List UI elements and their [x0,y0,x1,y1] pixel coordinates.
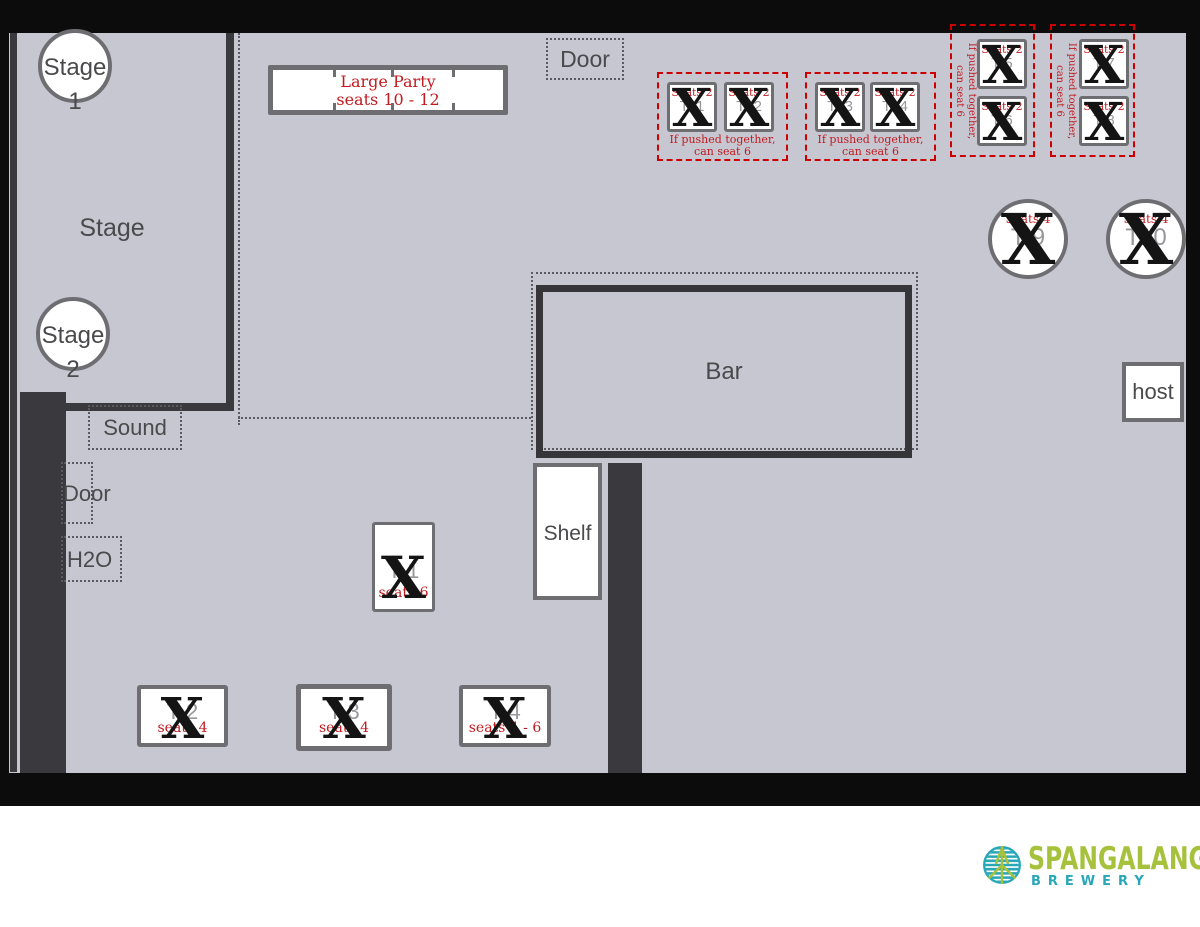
spangalang-logo-icon [980,843,1024,887]
t10-closed-x: X [1110,205,1182,275]
table-joint-tick [452,67,455,77]
t2-closed-x: X [141,691,224,747]
shelf: Shelf [533,463,602,600]
table-joint-tick [391,67,394,77]
stage2-label: Stage 2 [23,319,123,387]
table-t7[interactable]: Seats 2 T 7 X [1079,39,1129,89]
host-stand: host [1122,362,1184,422]
t3-closed-x: X [301,691,387,747]
stage-area-label: Stage [52,214,172,243]
bar: Bar [536,285,912,458]
table-t5[interactable]: Seats 2 T 5 X [977,39,1027,89]
t4-closed-x: X [463,691,547,747]
table-group-t5-t6: Seats 2 T 5 X Seats 2 T 6 X If pushed to… [950,24,1035,157]
group-note-line2: can seat 6 [807,146,934,158]
left-door-label: Door [63,481,111,507]
table-group-t7-t8: Seats 2 T 7 X Seats 2 T 8 X If pushed to… [1050,24,1135,157]
table-t11[interactable]: Seats 2 T11 X [667,82,717,132]
stage2-line1: Stage [23,319,123,353]
group-note: If pushed together, can seat 6 [659,134,786,158]
shelf-wall-column [608,463,642,773]
group-note-line2: can seat 6 [953,31,965,151]
stage-dotted-divider [238,33,240,425]
bottom-wall [0,773,1200,806]
t1-closed-x: X [375,549,432,607]
group-note-line2: can seat 6 [1053,31,1065,151]
table-large-party[interactable]: Large Party seats 10 - 12 [268,65,508,115]
group-note-rotated: If pushed together, can seat 6 [1053,31,1077,151]
stage1-line2: 1 [25,85,125,119]
group-note-line2: can seat 6 [659,146,786,158]
left-wall [0,0,9,806]
t13-closed-x: X [818,83,862,135]
top-door: Door [546,38,624,80]
floor-dotted-guide [238,417,531,419]
table-t9[interactable]: Seats 4 T 9 X [988,199,1068,279]
table-t10[interactable]: Seats 4 T10 X [1106,199,1186,279]
stage1-label: Stage 1 [25,51,125,119]
table-t2[interactable]: T 2 seats 4 X [137,685,228,747]
t6-closed-x: X [980,97,1024,149]
t8-closed-x: X [1082,97,1126,149]
floor-plan: Stage Stage 1 Stage 2 Sound Door H2O Doo… [0,0,1200,927]
shelf-label: Shelf [537,522,598,546]
table-joint-tick [333,103,336,113]
group-note-line1: If pushed together, [1065,31,1077,151]
table-t1[interactable]: T 1 seats 6 X [372,522,435,612]
brewery-logo: SPANGALANG BREWERY [980,841,1190,901]
t7-closed-x: X [1082,40,1126,92]
t12-closed-x: X [727,83,771,135]
stage1-line1: Stage [25,51,125,85]
large-party-seats: seats 10 - 12 [273,91,503,109]
t9-closed-x: X [992,205,1064,275]
t14-closed-x: X [873,83,917,135]
table-t8[interactable]: Seats 2 T 8 X [1079,96,1129,146]
group-note: If pushed together, can seat 6 [807,134,934,158]
table-group-t13-t14: Seats 2 T13 X Seats 2 T14 X If pushed to… [805,72,936,161]
table-t3[interactable]: T 3 seats 4 X [296,684,392,751]
sound-booth: Sound [88,405,182,450]
h2o-label: H2O [67,547,112,573]
stage-left-wall [10,33,17,772]
stage-right-wall [226,33,234,411]
table-joint-tick [452,103,455,113]
left-thick-wall [20,392,66,773]
right-wall [1186,0,1200,806]
table-joint-tick [391,103,394,113]
t11-closed-x: X [670,83,714,135]
stage2-line2: 2 [23,353,123,387]
table-t14[interactable]: Seats 2 T14 X [870,82,920,132]
t5-closed-x: X [980,40,1024,92]
table-t4[interactable]: T 4 seats 4 - 6 X [459,685,551,747]
logo-brand-text: SPANGALANG [1028,841,1200,877]
table-t6[interactable]: Seats 2 T 6 X [977,96,1027,146]
large-party-title: Large Party [273,73,503,91]
group-note-rotated: If pushed together, can seat 6 [953,31,977,151]
group-note-line1: If pushed together, [965,31,977,151]
table-t12[interactable]: Seats 2 T12 X [724,82,774,132]
table-t13[interactable]: Seats 2 T13 X [815,82,865,132]
logo-subtitle-text: BREWERY [1031,874,1151,889]
table-group-t11-t12: Seats 2 T11 X Seats 2 T12 X If pushed to… [657,72,788,161]
table-joint-tick [333,67,336,77]
